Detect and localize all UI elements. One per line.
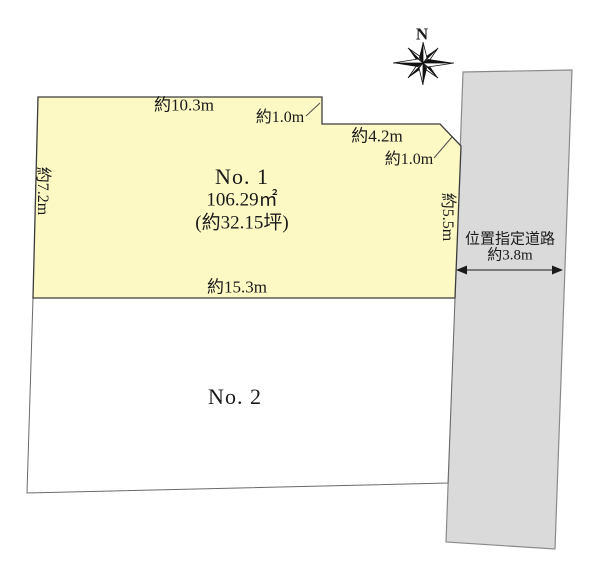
plot1-area-tsubo: (約32.15坪) (195, 214, 288, 233)
road-width: 約3.8m (487, 249, 532, 264)
dim-left-edge: 約7.2m (34, 167, 50, 215)
dim-corner-cut: 約1.0m (385, 152, 433, 168)
road-shape (446, 70, 572, 549)
compass-rose-icon (393, 42, 454, 85)
plot2-name: No. 2 (208, 386, 262, 408)
plot1-area-m2: 106.29㎡ (206, 191, 277, 210)
dim-upper-right-edge: 約4.2m (351, 128, 402, 145)
plot1-name: No. 1 (215, 166, 269, 188)
plot-plan-drawing (0, 0, 600, 575)
dim-step: 約1.0m (256, 110, 304, 126)
dim-right-edge: 約5.5m (439, 193, 455, 241)
dim-top-edge: 約10.3m (154, 97, 214, 114)
land-plot-diagram: N 約10.3m 約1.0m 約4.2m 約1.0m 約7.2m 約5.5m 約… (0, 0, 600, 575)
road-name: 位置指定道路 (465, 233, 555, 248)
dim-bottom-edge: 約15.3m (207, 279, 267, 296)
compass-north-label: N (416, 26, 428, 43)
